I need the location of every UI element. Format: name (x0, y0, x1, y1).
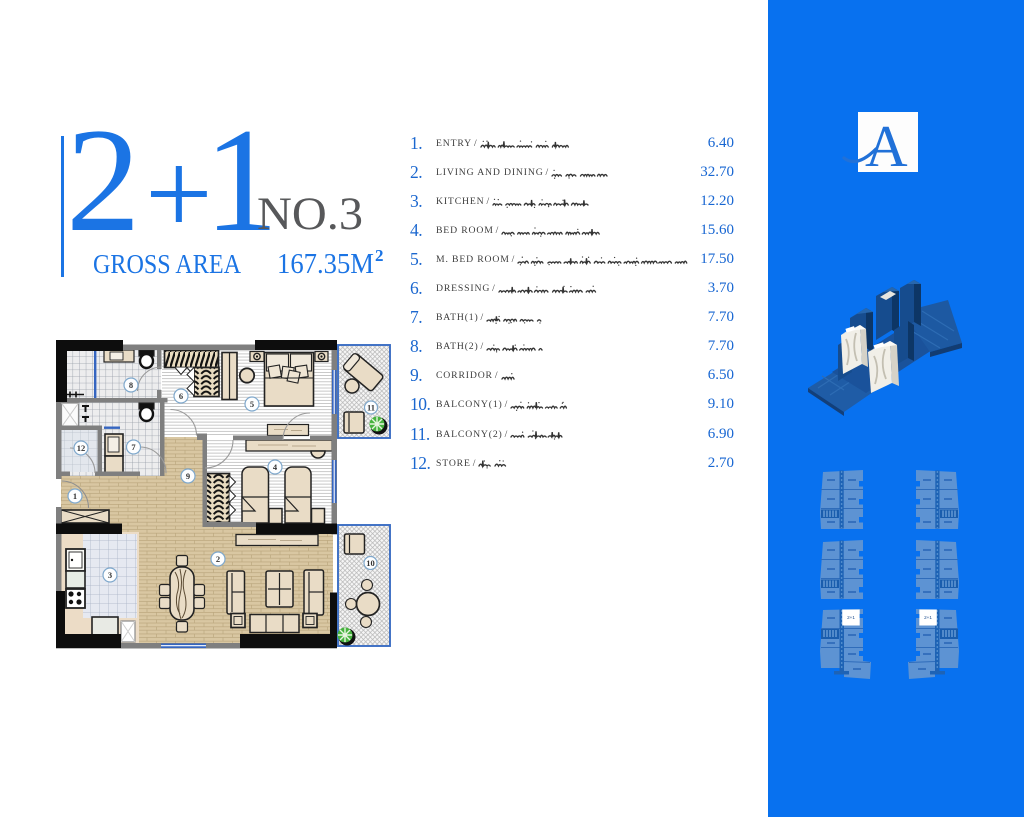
svg-text:3: 3 (108, 570, 112, 580)
svg-text:5: 5 (250, 399, 254, 409)
svg-text:+: + (145, 127, 213, 240)
svg-text:2+1: 2+1 (924, 615, 932, 620)
svg-text:1: 1 (73, 491, 77, 501)
svg-text:6: 6 (179, 391, 183, 401)
svg-text:12: 12 (77, 443, 86, 453)
svg-text:2: 2 (216, 554, 220, 564)
svg-text:NO.3: NO.3 (257, 192, 363, 234)
svg-text:2+1: 2+1 (847, 615, 855, 620)
svg-text:A: A (865, 113, 908, 179)
svg-text:GROSS AREA: GROSS AREA (93, 250, 241, 278)
svg-text:8: 8 (129, 380, 133, 390)
svg-text:10: 10 (366, 558, 375, 568)
svg-text:9: 9 (186, 471, 190, 481)
svg-text:11: 11 (367, 403, 375, 413)
svg-text:167.35M: 167.35M (277, 248, 374, 278)
svg-text:2: 2 (375, 248, 384, 265)
svg-text:2: 2 (68, 120, 141, 240)
